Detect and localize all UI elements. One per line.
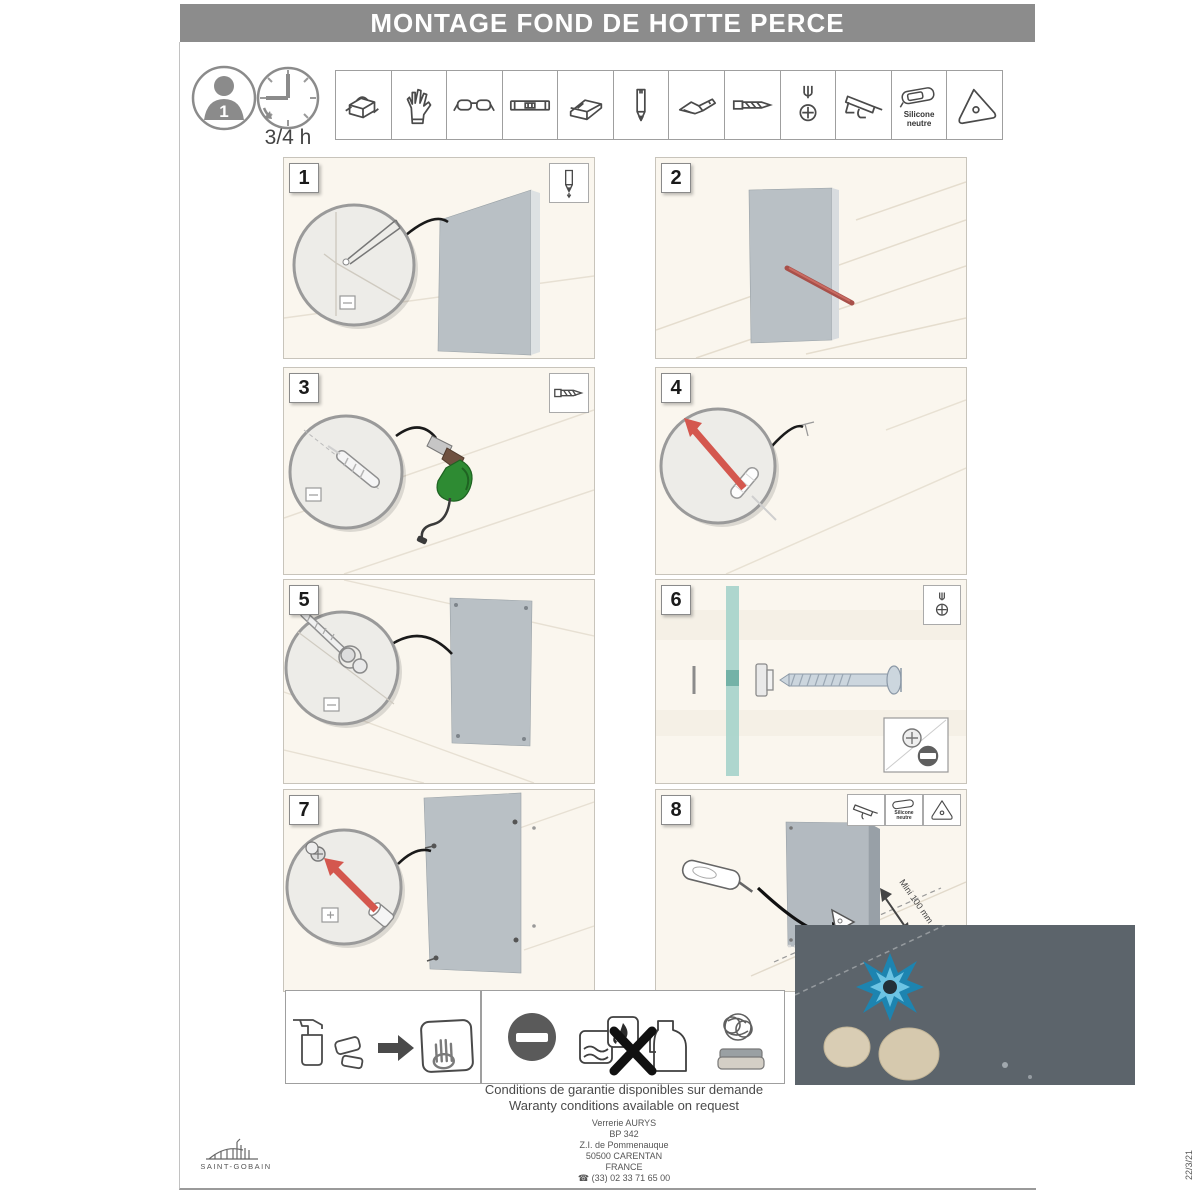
revision-date: 22/3/21 <box>1184 1150 1194 1180</box>
work-gloves-icon <box>392 71 448 139</box>
page-title-banner: MONTAGE FOND DE HOTTE PERCE <box>180 4 1035 42</box>
step-7-number: 7 <box>289 795 319 825</box>
neutral-silicone-tube-icon: Silicone neutre <box>892 71 948 139</box>
step-5-number: 5 <box>289 585 319 615</box>
clock-icon <box>252 62 324 134</box>
person-count: 1 <box>219 102 228 121</box>
forbidden-icons <box>482 991 784 1083</box>
triangle-smoother-icon <box>947 71 1002 139</box>
gas-flame-photo <box>795 925 1135 1085</box>
pencil-icon <box>614 71 670 139</box>
phone-number: ☎ (33) 02 33 71 65 00 <box>283 1173 965 1184</box>
step-4-panel: 4 <box>655 367 967 575</box>
brand-name: SAINT-GOBAIN <box>188 1162 284 1171</box>
caulking-gun-mini-icon <box>847 794 885 826</box>
warranty-en: Waranty conditions available on request <box>283 1098 965 1114</box>
screwdriver-mini-icon <box>923 585 961 625</box>
step-6-art <box>656 580 966 783</box>
drill-bit-mini-icon <box>549 373 589 413</box>
cleaning-instructions-box <box>285 990 481 1084</box>
hob-photo-inset <box>795 925 1135 1085</box>
spirit-level-icon <box>503 71 559 139</box>
page-title: MONTAGE FOND DE HOTTE PERCE <box>370 8 844 39</box>
step-6-panel: 6 <box>655 579 967 784</box>
silicone-mini-icon: Silicone neutre <box>885 794 923 826</box>
cutter-knife-icon <box>669 71 725 139</box>
step-3-art <box>284 368 594 574</box>
step-3-number: 3 <box>289 373 319 403</box>
address-country: FRANCE <box>283 1162 965 1173</box>
step-2-number: 2 <box>661 163 691 193</box>
steel-wool-icon <box>724 1014 752 1040</box>
scouring-pad-icon <box>718 1049 764 1069</box>
step-2-panel: 2 <box>655 157 967 359</box>
step-1-panel: 1 <box>283 157 595 359</box>
step-1-art <box>284 158 594 358</box>
drill-bit-icon <box>725 71 781 139</box>
step-3-panel: 3 <box>283 367 595 575</box>
pencil-mini-icon <box>549 163 589 203</box>
company-name: Verrerie AURYS <box>283 1118 965 1129</box>
safety-glasses-icon <box>447 71 503 139</box>
person-count-icon: 1 <box>190 64 258 132</box>
phillips-screwdriver-icon <box>781 71 837 139</box>
step-4-art <box>656 368 966 574</box>
instruction-sheet: MONTAGE FOND DE HOTTE PERCE 1 3/4 h <box>0 0 1200 1200</box>
step-5-art <box>284 580 594 783</box>
min-distance-label: Mini 100 mm <box>897 877 935 925</box>
step-1-number: 1 <box>289 163 319 193</box>
address-po-box: BP 342 <box>283 1129 965 1140</box>
step-7-panel: 7 <box>283 789 595 992</box>
step-2-art <box>656 158 966 358</box>
triangle-mini-icon <box>923 794 961 826</box>
step-8-number: 8 <box>661 795 691 825</box>
tools-row: Silicone neutre <box>335 70 1003 140</box>
bridge-icon <box>201 1136 271 1162</box>
saint-gobain-logo: SAINT-GOBAIN <box>188 1136 284 1171</box>
address-street: Z.I. de Pommenauque <box>283 1140 965 1151</box>
step-6-number: 6 <box>661 585 691 615</box>
corner-square-icon <box>558 71 614 139</box>
step-4-number: 4 <box>661 373 691 403</box>
silicone-label: Silicone neutre <box>904 110 935 128</box>
caulking-gun-icon <box>836 71 892 139</box>
forbidden-products-box <box>481 990 785 1084</box>
step-7-art <box>284 790 594 991</box>
address-city: 50500 CARENTAN <box>283 1151 965 1162</box>
toolbox-icon <box>336 71 392 139</box>
step-5-panel: 5 <box>283 579 595 784</box>
duration-label: 3/4 h <box>244 126 332 150</box>
footer-text: Conditions de garantie disponibles sur d… <box>283 1082 965 1184</box>
cleaning-icons <box>286 991 480 1083</box>
